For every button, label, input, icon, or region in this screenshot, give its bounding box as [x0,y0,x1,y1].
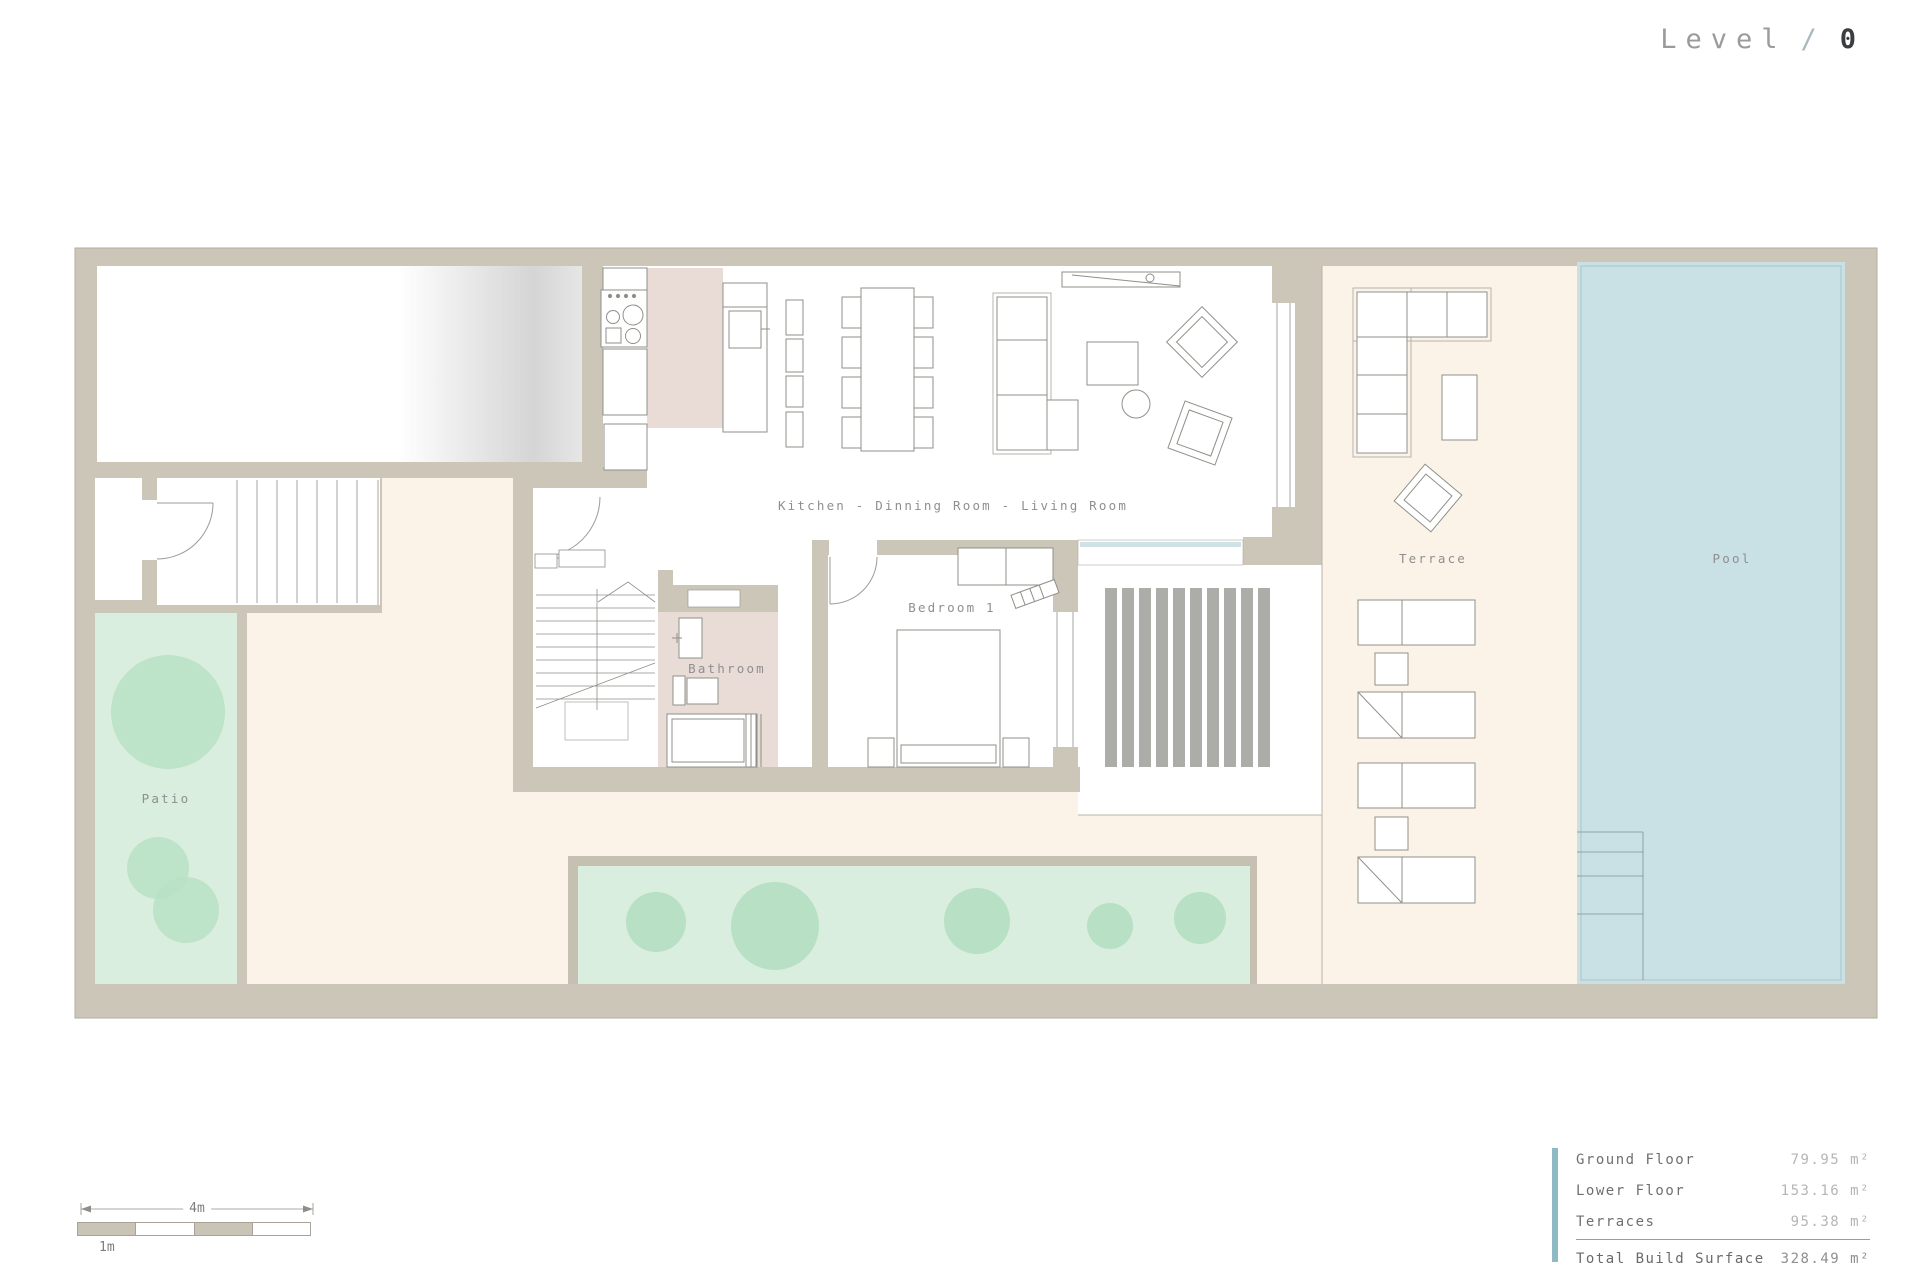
pool-area [1577,262,1845,984]
title-level-number: 0 [1840,24,1856,55]
row-label: Ground Floor [1576,1152,1695,1168]
shower [667,714,761,767]
side-table [1122,390,1150,418]
area-summary-table: Ground Floor 79.95 m² Lower Floor 153.16… [1552,1144,1870,1274]
scale-segment [252,1223,310,1235]
label-bedroom: Bedroom 1 [908,600,996,615]
row-value: 79.95 m² [1791,1152,1870,1168]
entrance-area [95,478,380,605]
entry-door-opening [142,500,157,560]
toilet [673,676,718,705]
scale-segment [135,1223,194,1235]
scale-segments [77,1222,311,1236]
bedroom-east-window [1053,612,1078,747]
row-label: Lower Floor [1576,1183,1685,1199]
row-value: 153.16 m² [1781,1183,1870,1199]
courtyard-window [1078,540,1243,565]
tv-bench [1062,272,1180,287]
dining-table [861,288,914,451]
label-pool: Pool [1713,551,1752,566]
wardrobe [958,548,1053,585]
label-kitchen-living: Kitchen - Dinning Room - Living Room [778,498,1128,513]
living-east-window [1272,303,1295,507]
scale-segment [195,1223,252,1235]
table-total-row: Total Build Surface 328.49 m² [1576,1243,1870,1274]
label-terrace: Terrace [1399,551,1467,566]
floor-plan-svg: Kitchen - Dinning Room - Living Room Bed… [0,0,1920,1280]
coffee-table [1087,342,1138,385]
page-title: Level / 0 [1660,24,1856,55]
outdoor-table [1442,375,1477,440]
table-row: Terraces 95.38 m² [1576,1206,1870,1237]
table-row: Ground Floor 79.95 m² [1576,1144,1870,1175]
row-label: Terraces [1576,1214,1655,1230]
title-level-word: Level [1660,24,1786,55]
row-value: 95.38 m² [1791,1214,1870,1230]
bath-niche [688,590,740,607]
nightstand-right [1003,738,1029,767]
kitchen-floor [647,268,723,428]
accent-bar [1552,1148,1558,1262]
scale-major-label: 4m [183,1200,211,1218]
scale-segment [78,1223,135,1235]
scale-bar: 4m 1m [77,1200,317,1255]
title-separator: / [1800,24,1825,55]
scale-minor-label: 1m [99,1240,317,1255]
garden-bed [568,856,1257,984]
cooktop [601,290,647,347]
bedroom-door-opening [829,540,877,555]
scale-dimension-line: 4m [77,1200,317,1218]
label-patio: Patio [142,791,191,806]
page: Kitchen - Dinning Room - Living Room Bed… [0,0,1920,1280]
nightstand-left [868,738,894,767]
label-bathroom: Bathroom [688,661,766,676]
table-divider [1576,1239,1870,1240]
kitchen-island [723,283,770,432]
total-value: 328.49 m² [1781,1251,1870,1267]
table-row: Lower Floor 153.16 m² [1576,1175,1870,1206]
driveway-area [97,266,582,462]
total-label: Total Build Surface [1576,1251,1765,1267]
